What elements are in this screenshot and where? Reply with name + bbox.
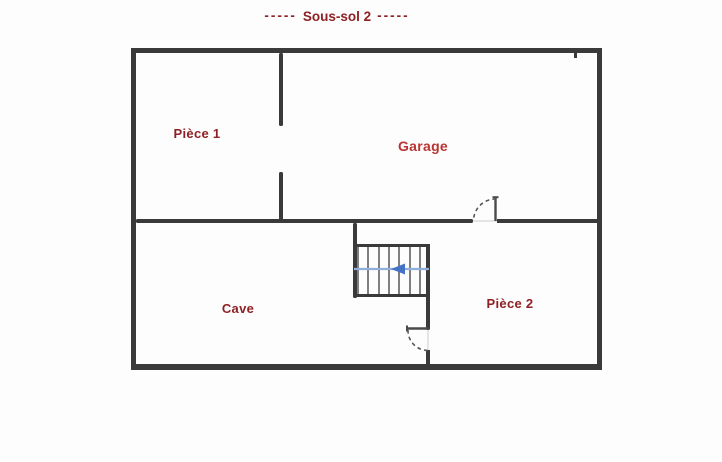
floor-plan-canvas: [0, 0, 722, 462]
room-label-piece-2: Pièce 2: [455, 296, 565, 311]
door-stairs-piece2: [407, 326, 429, 351]
stairs-top-edge: [353, 244, 430, 247]
wall-piece1-garage-lower: [279, 172, 283, 221]
wall-piece1-garage-upper: [279, 53, 283, 126]
wall-bottom: [131, 364, 602, 370]
stairs-bottom-edge: [353, 294, 430, 297]
door-swing-arc: [408, 331, 428, 351]
wall-top: [131, 48, 602, 53]
wall-door-stub: [426, 350, 430, 364]
exterior-walls: [131, 48, 602, 370]
left-arrow-icon: [391, 264, 405, 275]
wall-stairwell-left: [353, 223, 357, 298]
wall-divider-right: [497, 219, 597, 223]
stairs-treads: [358, 247, 420, 294]
interior-walls: [136, 53, 597, 364]
wall-left: [131, 48, 136, 370]
room-label-piece-1: Pièce 1: [142, 126, 252, 141]
wall-joint-tick: [574, 53, 577, 58]
room-label-cave: Cave: [183, 301, 293, 316]
stairs-direction-arrow-icon: [354, 264, 429, 275]
door-swing-arc: [474, 199, 496, 221]
door-garage-piece2: [473, 197, 499, 221]
wall-stairwell-right: [426, 244, 430, 330]
staircase: [353, 244, 430, 297]
room-label-garage: Garage: [368, 139, 478, 154]
wall-right: [597, 48, 602, 370]
floor-plan: -----Sous-sol 2-----: [0, 0, 722, 462]
wall-divider-left: [136, 219, 473, 223]
